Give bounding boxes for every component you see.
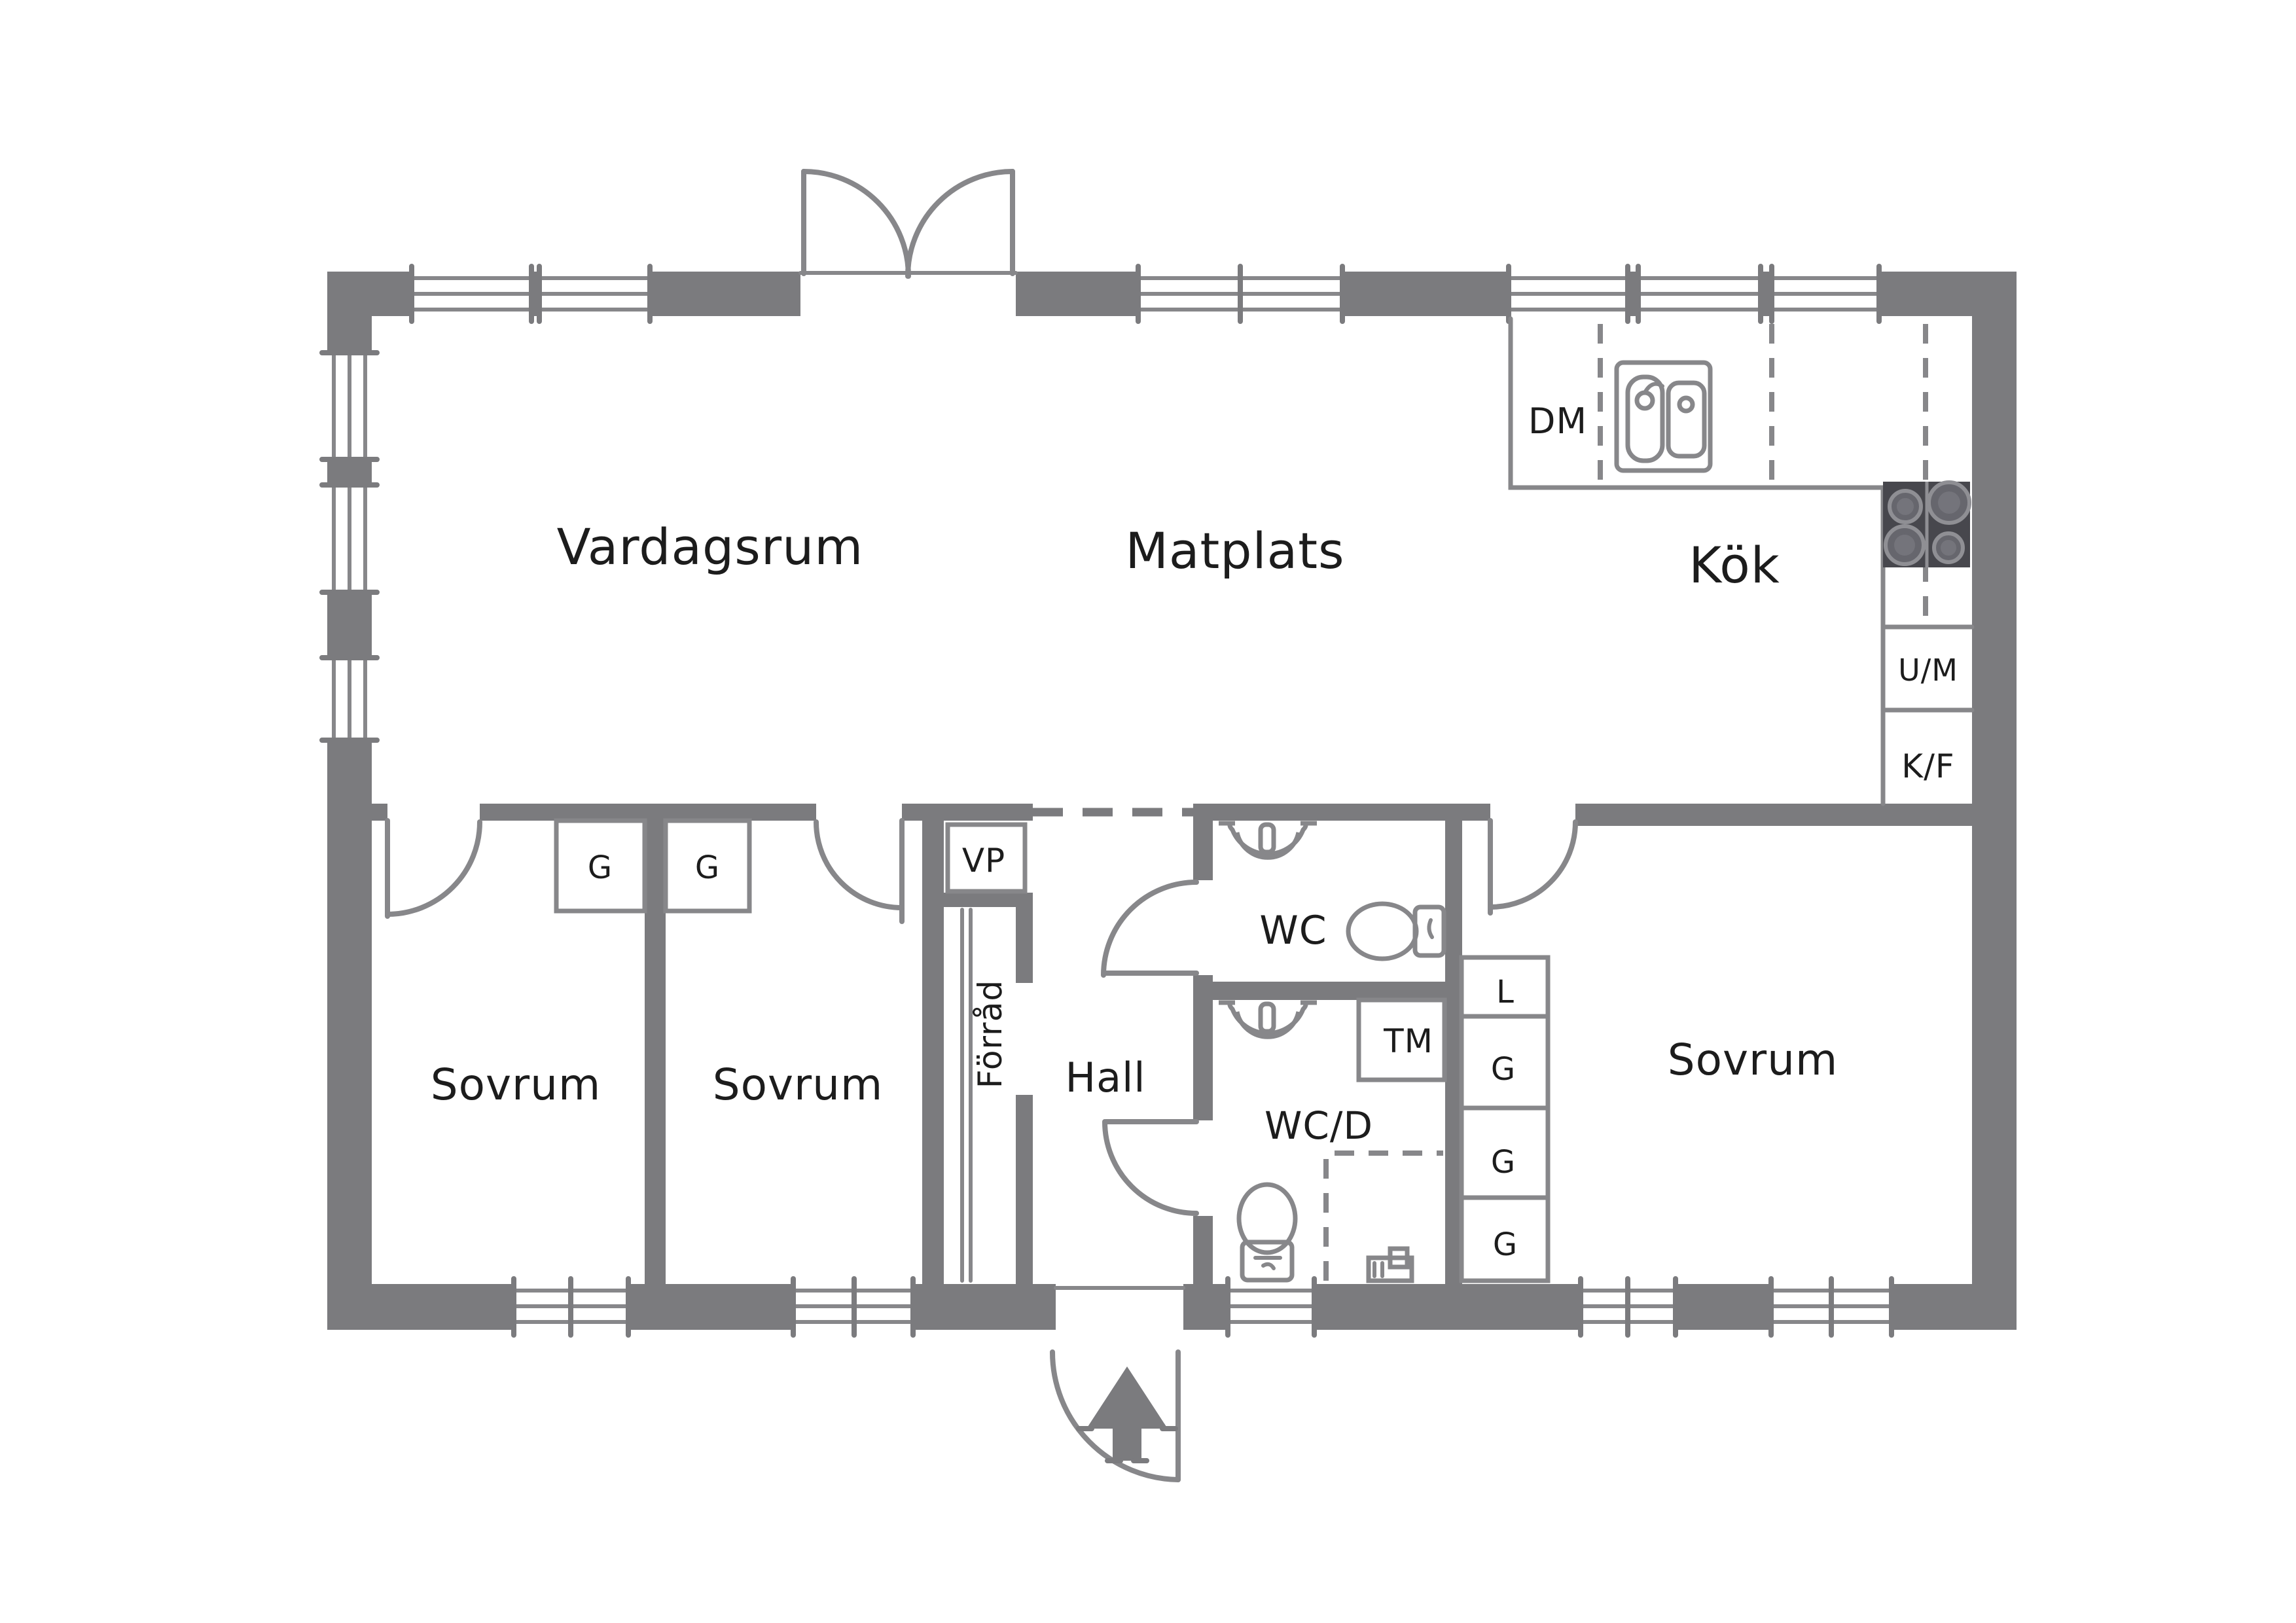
wall-vp-bottom: [944, 893, 1033, 907]
room-label-bedroom-left: Sovrum: [431, 1060, 601, 1110]
wall-bottom-corner-left: [327, 1284, 514, 1330]
wall-hall-right-lower: [1193, 1216, 1213, 1284]
wcd-small-sink: [1369, 1249, 1412, 1281]
door-bedroom-middle: [816, 821, 902, 921]
storage-inner-lines: [962, 910, 971, 1281]
window-bottom-2: [793, 1279, 913, 1335]
room-label-living: Vardagsrum: [557, 518, 864, 576]
room-label-dining: Matplats: [1125, 522, 1344, 580]
window-top-2: [539, 266, 650, 321]
label-closet-g2: G: [1491, 1144, 1516, 1181]
wall-left-post-1: [327, 459, 372, 485]
label-closet-g3: G: [1493, 1226, 1518, 1263]
wall-storage-right-lower: [1016, 1095, 1033, 1284]
exterior-walls: [327, 272, 2017, 1330]
window-top-3: [1138, 266, 1342, 321]
room-label-kitchen: Kök: [1689, 536, 1780, 594]
room-label-wc: WC: [1259, 908, 1327, 954]
label-bedroom-wardrobe-1: G: [588, 849, 613, 886]
door-wc: [1103, 882, 1196, 975]
label-fridge-freezer: K/F: [1901, 747, 1954, 785]
room-labels: Vardagsrum Matplats Kök Sovrum Sovrum So…: [431, 518, 1839, 1148]
window-left-1: [322, 353, 377, 459]
wall-bottom-corner-right: [1892, 1284, 2017, 1330]
wall-top-seg-4: [1342, 272, 1509, 316]
dashed-shower-zone: [1326, 1153, 1443, 1281]
wall-bottom-seg-6: [1676, 1284, 1771, 1330]
kitchen-double-sink: [1617, 363, 1710, 471]
wcd-hand-basin: [1219, 1003, 1317, 1037]
window-bottom-1: [514, 1279, 628, 1335]
wall-storage-left: [922, 821, 944, 1284]
wc-hand-basin: [1219, 823, 1317, 857]
label-closet-linen: L: [1496, 974, 1515, 1010]
windows: [322, 266, 1892, 1335]
wcd-toilet: [1239, 1185, 1295, 1280]
wall-wc-top: [1193, 804, 1490, 821]
label-bedroom-wardrobe-2: G: [695, 849, 720, 886]
window-left-2: [322, 485, 377, 592]
label-dishwasher: DM: [1528, 401, 1587, 442]
floor-plan-drawing: Vardagsrum Matplats Kök Sovrum Sovrum So…: [0, 0, 2296, 1623]
wall-bottom-seg-5: [1314, 1284, 1581, 1330]
door-bedroom-right: [1490, 821, 1575, 913]
wall-bottom-seg-3: [913, 1284, 1056, 1330]
wall-left-lower: [327, 740, 372, 1330]
wall-storage-right-upper: [1016, 906, 1033, 983]
wall-left-corner-top: [327, 272, 372, 353]
wall-left-block: [327, 592, 372, 658]
wall-bedrooms-top-c: [902, 804, 1033, 821]
room-label-wcd: WC/D: [1265, 1103, 1373, 1148]
wall-bottom-seg-2: [628, 1284, 793, 1330]
label-oven-microwave: U/M: [1898, 652, 1958, 688]
wall-bedrooms-top-b: [480, 804, 816, 821]
window-bottom-4: [1581, 1279, 1676, 1335]
label-closet-g1: G: [1491, 1051, 1516, 1088]
window-bottom-3: [1228, 1279, 1314, 1335]
window-top-6: [1772, 266, 1879, 321]
french-doors-symbol: [800, 171, 1016, 276]
room-label-hall: Hall: [1065, 1054, 1145, 1101]
label-washing-machine: TM: [1383, 1022, 1433, 1060]
floor-plan-canvas: Vardagsrum Matplats Kök Sovrum Sovrum So…: [0, 0, 2296, 1623]
room-label-bedroom-middle: Sovrum: [713, 1060, 884, 1110]
wc-toilet: [1348, 904, 1444, 959]
window-top-4: [1509, 266, 1628, 321]
window-top-1: [412, 266, 531, 321]
window-left-3: [322, 658, 377, 740]
window-bottom-5: [1771, 1279, 1892, 1335]
label-heat-pump: VP: [962, 842, 1005, 880]
wall-bottom-seg-4: [1183, 1284, 1228, 1330]
wall-top-seg-3: [1016, 272, 1138, 316]
room-label-storage: Förråd: [971, 980, 1009, 1088]
wall-wc-wcd-separator: [1193, 982, 1445, 1000]
wall-between-bedrooms: [645, 821, 666, 1284]
stove-4-burners: [1883, 482, 1970, 567]
wall-bedroom-right-top: [1575, 804, 1972, 826]
door-wcd: [1105, 1122, 1196, 1213]
wall-top-seg-2: [650, 272, 800, 316]
wall-right: [1972, 272, 2017, 1330]
wall-bedrooms-top-a: [372, 804, 387, 821]
door-bedroom-left: [387, 821, 480, 916]
wall-hall-right-upper: [1193, 821, 1213, 880]
window-top-5: [1638, 266, 1761, 321]
room-label-bedroom-right: Sovrum: [1668, 1035, 1839, 1085]
